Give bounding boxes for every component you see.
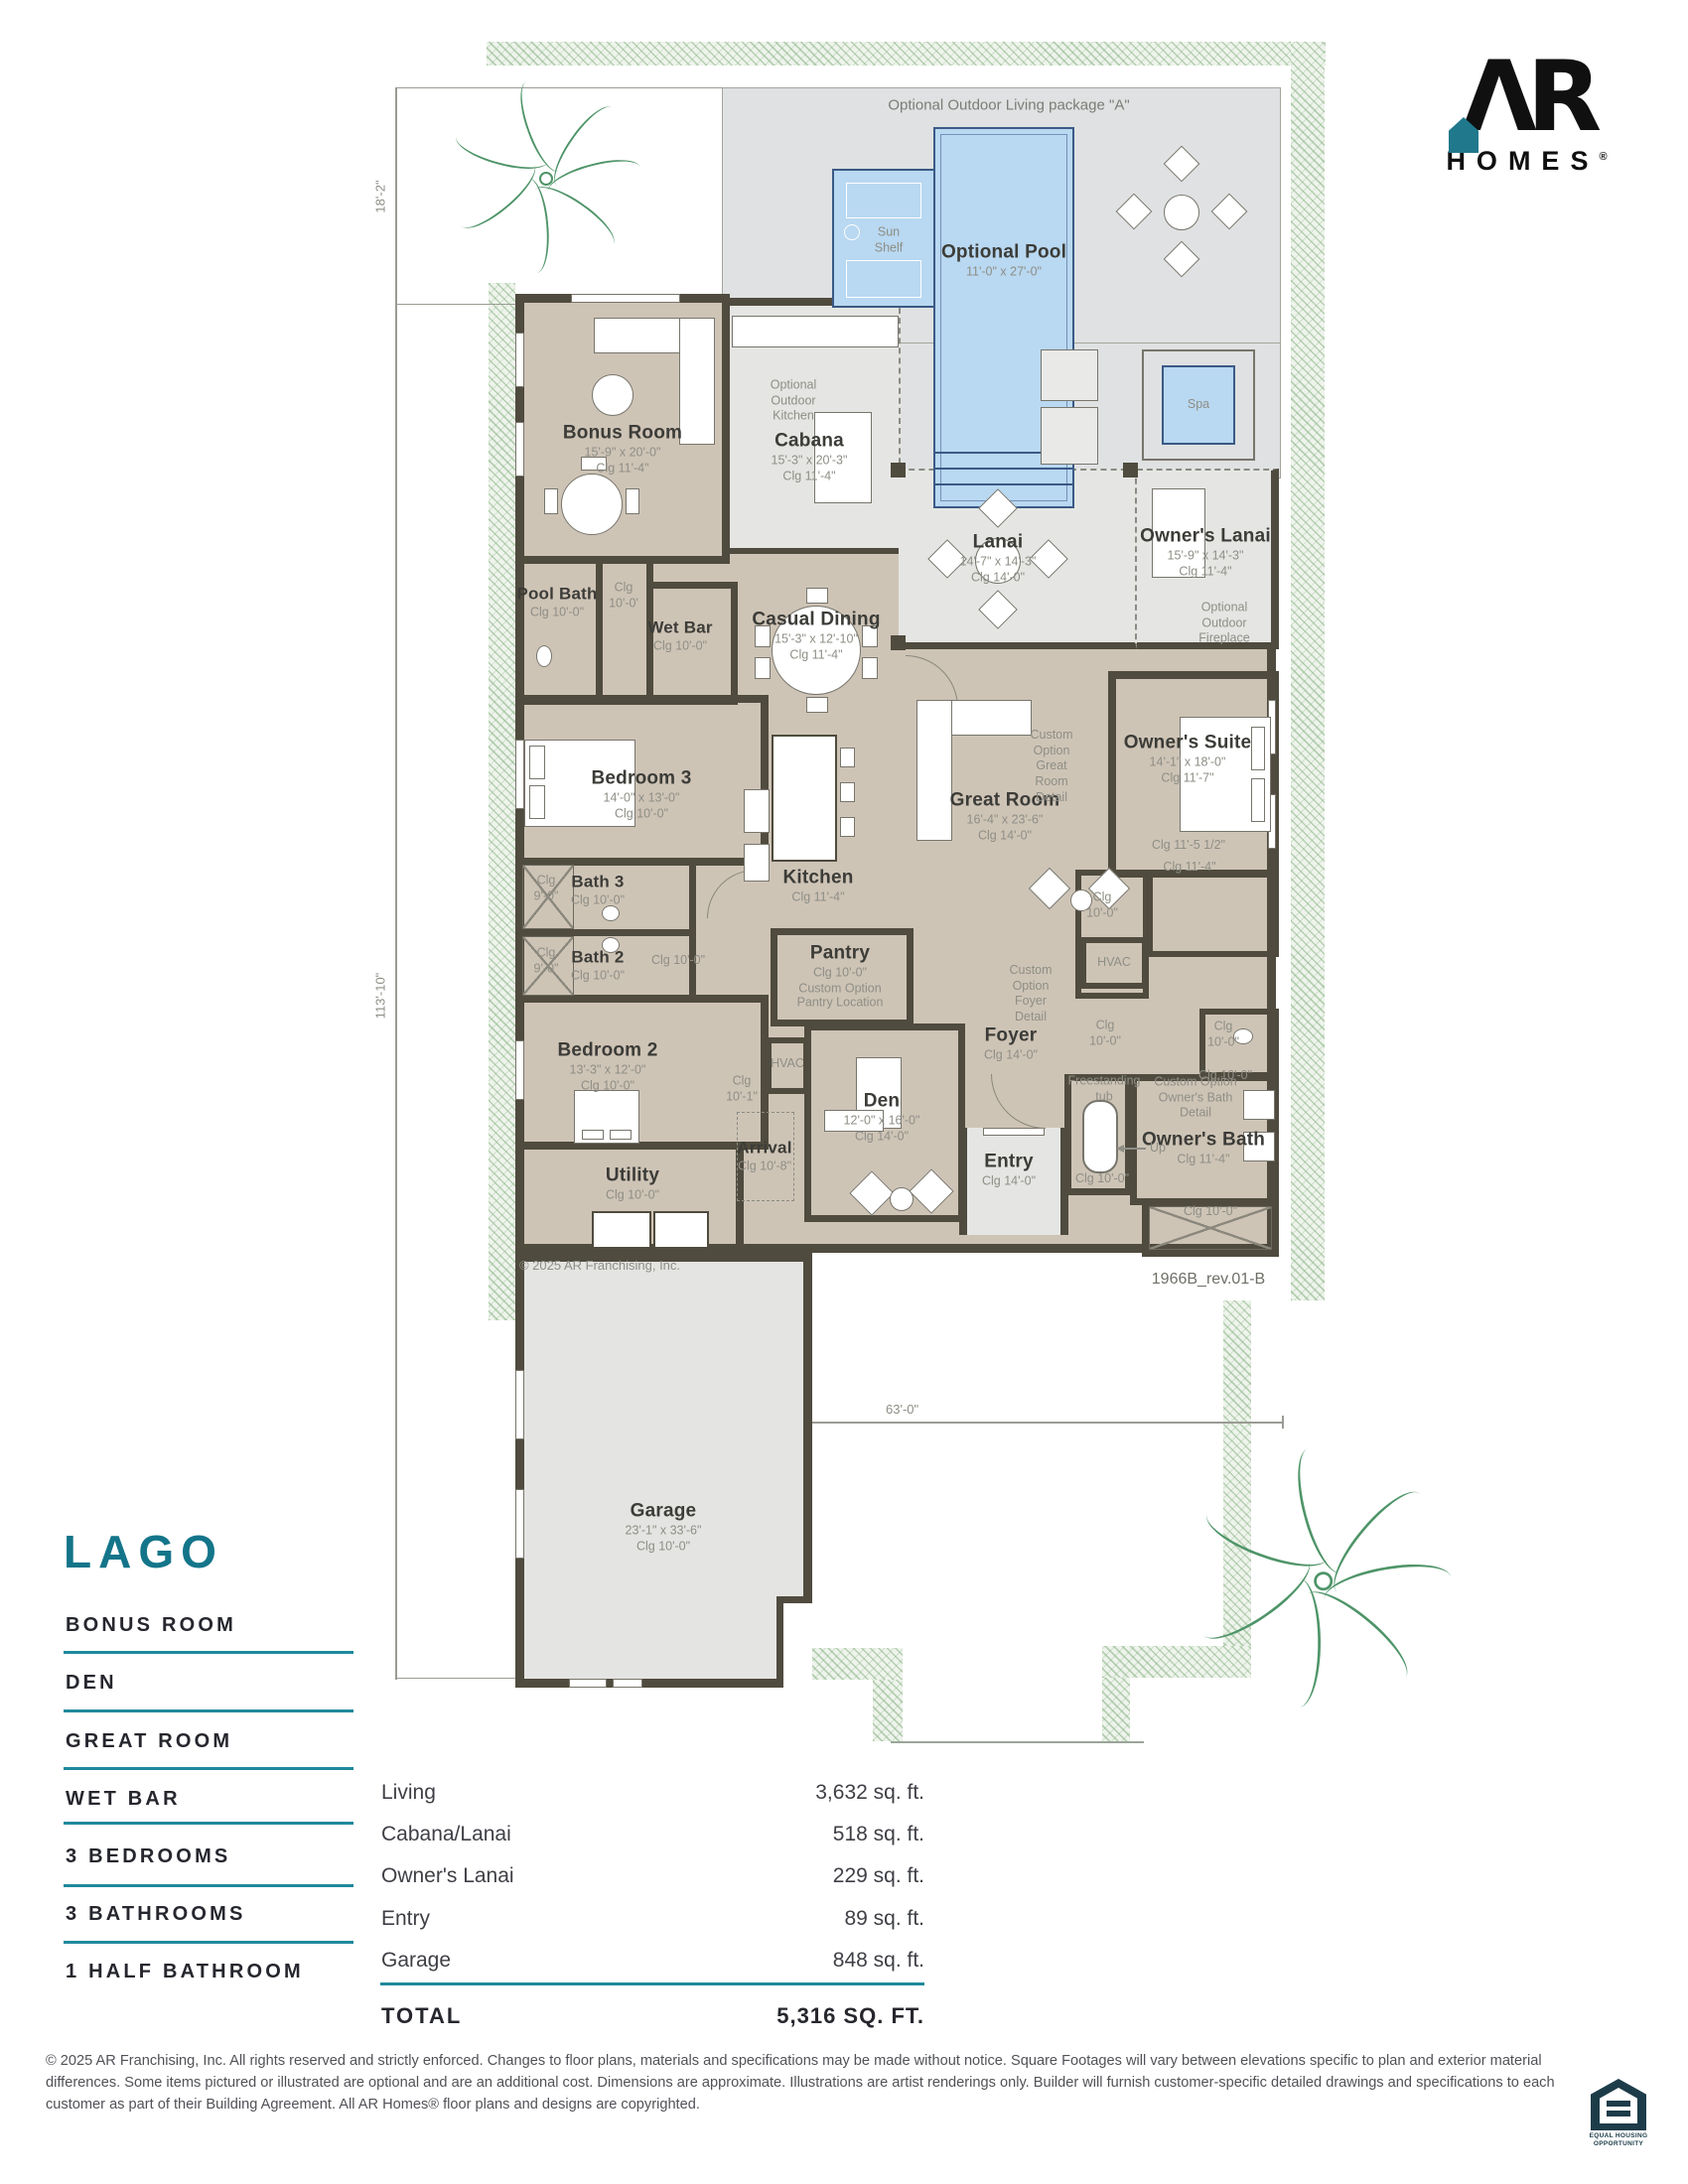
annotation-a_clg_wc: Clg 10'-0": [1207, 1019, 1239, 1049]
pool-circle-icon: [844, 224, 860, 240]
garage-notch: [776, 1596, 812, 1688]
room-ceiling: Clg 11'-4": [1140, 565, 1271, 579]
chair-icon: [544, 488, 558, 514]
toilet-icon: [536, 645, 552, 667]
stool-icon: [840, 817, 855, 837]
game-table-icon: [561, 474, 623, 535]
chair-icon: [626, 488, 639, 514]
room-label-pool: Optional Pool11'-0" x 27'-0": [941, 241, 1066, 278]
annotation-a_tub: Freestanding tub: [1068, 1073, 1141, 1104]
window: [613, 1679, 642, 1688]
lot-hatch-left: [489, 283, 515, 1320]
window: [515, 1040, 524, 1100]
room-name: Entry: [982, 1151, 1036, 1171]
area-label: Owner's Lanai: [381, 1864, 514, 1888]
annotation-a_clg_114o: Clg 11'-4": [1163, 860, 1215, 876]
annotation-a_hvac1: HVAC: [771, 1056, 804, 1072]
room-name: Bedroom 2: [557, 1039, 657, 1060]
registered-mark: ®: [1599, 151, 1607, 163]
room-label-arrival: ArrivalClg 10'-8": [737, 1138, 791, 1172]
kitchen-island: [772, 735, 837, 862]
room-name: Pantry: [797, 942, 884, 963]
spa-bench: [1041, 349, 1098, 401]
area-value: 848 sq. ft.: [676, 1949, 924, 1973]
pool-lap-line: [935, 468, 1072, 470]
annotation-a_great_detail: Custom Option Great Room Detail: [1030, 728, 1072, 805]
room-dimensions: 14'-7" x 14'-3": [960, 555, 1037, 569]
stool-icon: [840, 782, 855, 802]
feature-divider: [64, 1884, 353, 1887]
lounger-icon: [846, 183, 921, 218]
room-hall-pb: [596, 556, 653, 705]
room-ceiling: Clg 11'-7": [1124, 771, 1252, 785]
room-label-casual: Casual Dining15'-3" x 12'-10"Clg 11'-4": [752, 609, 880, 661]
total-divider: [380, 1982, 924, 1985]
total-value: 5,316 SQ. FT.: [676, 2003, 924, 2029]
chair-icon: [806, 697, 828, 713]
room-dimensions: 15'-9" x 14'-3": [1140, 549, 1271, 563]
room-label-garage: Garage23'-1" x 33'-6"Clg 10'-0": [626, 1500, 702, 1553]
lanai-column: [1123, 463, 1138, 478]
room-label-wet_bar: Wet BarClg 10'-0": [647, 617, 712, 652]
equal-housing-logo: EQUAL HOUSING OPPORTUNITY: [1583, 2079, 1654, 2149]
feature-item: GREAT ROOM: [66, 1730, 353, 1753]
window: [515, 422, 524, 477]
cabana-counter: [732, 316, 899, 347]
feature-item: 3 BATHROOMS: [66, 1903, 353, 1926]
room-ceiling: Clg 11'-4": [752, 648, 880, 662]
area-value: 89 sq. ft.: [676, 1907, 924, 1931]
room-label-pool_bath: Pool BathClg 10'-0": [516, 584, 597, 618]
disclaimer-text: © 2025 AR Franchising, Inc. All rights r…: [46, 2051, 1583, 2116]
logo-monogram: ΛR: [1415, 52, 1638, 144]
room-ceiling: Clg 10'-0": [516, 606, 597, 619]
area-value: 229 sq. ft.: [676, 1864, 924, 1888]
lanai-column: [891, 635, 906, 650]
room-ceiling: Clg 10'-0": [557, 1079, 657, 1093]
dim-bottom-label: 63'-0": [880, 1402, 924, 1417]
room-ceiling: Clg 10'-0": [797, 966, 884, 980]
room-ceiling: Clg 10'-0": [606, 1188, 659, 1202]
room-name: Den: [844, 1090, 920, 1111]
area-value: 3,632 sq. ft.: [676, 1781, 924, 1805]
room-dimensions: 15'-9" x 20'-0": [563, 446, 682, 460]
room-label-utility: UtilityClg 10'-0": [606, 1164, 659, 1201]
feature-divider: [64, 1941, 353, 1944]
stool-icon: [840, 748, 855, 767]
room-label-entry: EntryClg 14'-0": [982, 1151, 1036, 1187]
room-ceiling: Clg 14'-0": [950, 829, 1060, 843]
pillow-icon: [529, 785, 545, 819]
plan-copyright: © 2025 AR Franchising, Inc.: [519, 1258, 680, 1274]
window: [571, 294, 680, 303]
ottoman-icon: [592, 374, 633, 416]
area-value: 518 sq. ft.: [676, 1823, 924, 1846]
lot-hatch-right: [1291, 42, 1325, 1300]
dim-tick-right: [1282, 1416, 1284, 1429]
window: [569, 1679, 607, 1688]
dryer-icon: [653, 1211, 709, 1249]
walkway-hatch-5: [873, 1680, 903, 1741]
window: [515, 1489, 524, 1559]
lounger-icon: [846, 260, 921, 298]
floor-plan-page: 18'-2" 113'-10" 63'-0" Optional Outdoor …: [0, 0, 1688, 2184]
dim-ext-mid: [395, 304, 516, 305]
room-dimensions: 13'-3" x 12'-0": [557, 1063, 657, 1077]
lot-line-bottom: [891, 1741, 1144, 1743]
room-name: Utility: [606, 1164, 659, 1185]
fridge-icon: [744, 844, 770, 882]
room-ceiling: Clg 11'-4": [772, 470, 848, 483]
pillow-icon: [529, 746, 545, 779]
room-label-pantry: PantryClg 10'-0"Custom Option Pantry Loc…: [797, 942, 884, 1009]
room-dimensions: 15'-3" x 20'-3": [772, 454, 848, 468]
annotation-a_clg_foyc: Clg 10'-0": [1089, 1018, 1121, 1048]
dim-ext-bottom: [395, 1678, 516, 1679]
package-label: Optional Outdoor Living package "A": [888, 97, 1129, 116]
annotation-a_sun_shelf: Sun Shelf: [875, 224, 904, 255]
toilet-icon: [602, 905, 620, 921]
area-label: Garage: [381, 1949, 451, 1973]
room-ceiling: Clg 10'-0": [626, 1540, 702, 1554]
patio-table-icon: [1164, 195, 1199, 230]
annotation-a_clg_closL: Clg 10'-0": [1086, 889, 1118, 920]
logo-wordmark: HOMES®: [1415, 146, 1638, 177]
eho-label: EQUAL HOUSING OPPORTUNITY: [1583, 2132, 1654, 2149]
room-ceiling: Clg 10'-0": [571, 893, 625, 907]
entry-door-opening: [983, 1128, 1045, 1136]
eho-house-icon: [1591, 2079, 1646, 2130]
room-ceiling: Clg 10'-0": [571, 969, 625, 983]
window: [515, 333, 524, 387]
room-ceiling: Clg 10'-8": [737, 1160, 791, 1173]
washer-icon: [592, 1211, 651, 1249]
room-dimensions: 16'-4" x 23'-6": [950, 813, 1060, 827]
annotation-a_up: Up: [1150, 1141, 1166, 1157]
room-dimensions: 23'-1" x 33'-6": [626, 1524, 702, 1538]
room-label-bed2: Bedroom 213'-3" x 12'-0"Clg 10'-0": [557, 1039, 657, 1092]
dim-top-label: 18'-2": [373, 180, 388, 212]
pool-lap-line: [935, 483, 1072, 485]
annotation-a_clg_b2s: Clg 9'-0": [534, 945, 559, 976]
annotation-a_hvac2: HVAC: [1097, 955, 1131, 971]
chair-icon: [806, 588, 828, 604]
room-name: Bath 2: [571, 947, 625, 966]
room-name: Garage: [626, 1500, 702, 1521]
sectional-icon: [916, 700, 952, 841]
feature-item: DEN: [66, 1672, 353, 1695]
room-label-bath3: Bath 3Clg 10'-0": [571, 872, 625, 906]
feature-item: 1 HALF BATHROOM: [66, 1961, 353, 1983]
feature-divider: [64, 1651, 353, 1654]
room-closet-right: [1147, 870, 1279, 957]
room-label-bed3: Bedroom 314'-0" x 13'-0"Clg 10'-0": [591, 767, 691, 820]
room-ceiling: Clg 10'-0": [647, 639, 712, 653]
dim-left-label: 113'-10": [373, 973, 388, 1020]
room-label-owners_lanai: Owner's Lanai15'-9" x 14'-3"Clg 11'-4": [1140, 525, 1271, 578]
dim-ext-top: [395, 87, 723, 88]
room-label-foyer: FoyerClg 14'-0": [984, 1024, 1038, 1061]
room-ceiling: Clg 11'-4": [782, 890, 853, 904]
room-name: Lanai: [960, 531, 1037, 552]
area-label: Living: [381, 1781, 436, 1805]
window: [515, 1370, 524, 1439]
room-name: Casual Dining: [752, 609, 880, 629]
pillow-icon: [582, 1130, 604, 1140]
room-garage: [515, 1253, 812, 1688]
sectional-icon: [679, 318, 715, 445]
room-ceiling: Clg 10'-0": [591, 807, 691, 821]
range-icon: [744, 789, 770, 833]
room-name: Owner's Suite: [1124, 732, 1252, 752]
annotation-a_foyer_detail: Custom Option Foyer Detail: [1009, 963, 1052, 1025]
room-dimensions: 14'-0" x 13'-0": [591, 791, 691, 805]
annotation-a_clg_1155: Clg 11'-5 1/2": [1152, 838, 1225, 854]
vanity-sink-icon: [1243, 1090, 1275, 1120]
room-name: Bath 3: [571, 872, 625, 890]
room-dimensions: 15'-3" x 12'-10": [752, 632, 880, 646]
room-pool-bath: [515, 556, 603, 705]
freestanding-tub-icon: [1082, 1100, 1118, 1173]
plan-title: LAGO: [64, 1525, 223, 1578]
area-label: Cabana/Lanai: [381, 1823, 511, 1846]
room-name: Arrival: [737, 1138, 791, 1157]
annotation-a_clg_101: Clg 10'-1": [726, 1073, 758, 1104]
annotation-a_clg_wc2: Clg 10'-0": [1198, 1068, 1252, 1084]
room-label-den: Den12'-0" x 16'-0"Clg 14'-0": [844, 1090, 920, 1143]
room-label-bonus: Bonus Room15'-9" x 20'-0"Clg 11'-4": [563, 422, 682, 475]
walkway-hatch-3: [1102, 1678, 1130, 1743]
annotation-a_clg_oshower: Clg 10'-0": [1184, 1204, 1237, 1220]
room-dimensions: 11'-0" x 27'-0": [941, 265, 1066, 279]
room-ceiling: Clg 14'-0": [960, 571, 1037, 585]
total-label: TOTAL: [381, 2003, 462, 2029]
lanai-column: [891, 463, 906, 478]
plan-number: 1966B_rev.01-B: [1152, 1270, 1265, 1290]
room-name: Cabana: [772, 430, 848, 451]
up-arrow-head: [1116, 1145, 1124, 1153]
room-label-owners: Owner's Suite14'-1" x 18'-0"Clg 11'-7": [1124, 732, 1252, 784]
room-name: Optional Pool: [941, 241, 1066, 262]
room-label-bath2: Bath 2Clg 10'-0": [571, 947, 625, 982]
room-name: Foyer: [984, 1024, 1038, 1045]
annotation-a_opt_kitchen: Optional Outdoor Kitchen: [771, 378, 817, 425]
room-name: Wet Bar: [647, 617, 712, 636]
room-dimensions: 12'-0" x 16'-0": [844, 1114, 920, 1128]
room-ceiling: Clg 14'-0": [982, 1174, 1036, 1188]
pillow-icon: [1251, 778, 1265, 822]
annotation-a_clg_hall2: Clg 10'-0": [651, 953, 705, 969]
room-name: Owner's Lanai: [1140, 525, 1271, 546]
room-dimensions: 14'-1" x 18'-0": [1124, 755, 1252, 769]
spa-bench: [1041, 407, 1098, 465]
annotation-a_spa: Spa: [1188, 397, 1209, 413]
feature-divider: [64, 1822, 353, 1825]
annotation-a_opt_fireplace: Optional Outdoor Fireplace: [1198, 601, 1249, 647]
annotation-a_clg_tubroom: Clg 10'-0": [1075, 1171, 1129, 1187]
feature-item: WET BAR: [66, 1788, 353, 1811]
walkway-hatch-2: [1102, 1646, 1251, 1678]
window: [515, 740, 524, 809]
feature-item: 3 BEDROOMS: [66, 1845, 353, 1868]
area-label: Entry: [381, 1907, 430, 1931]
room-label-lanai: Lanai14'-7" x 14'-3"Clg 14'-0": [960, 531, 1037, 584]
dim-line-vertical: [395, 87, 397, 1680]
room-name: Pool Bath: [516, 584, 597, 603]
feature-divider: [64, 1709, 353, 1712]
room-note: Custom Option Pantry Location: [797, 982, 884, 1010]
pillow-icon: [1251, 727, 1265, 770]
room-name: Bedroom 3: [591, 767, 691, 788]
feature-divider: [64, 1767, 353, 1770]
ar-homes-logo: ΛR HOMES®: [1415, 52, 1638, 210]
room-name: Kitchen: [782, 867, 853, 887]
side-table-icon: [890, 1187, 914, 1211]
lot-hatch-top: [487, 42, 1326, 66]
room-ceiling: Clg 14'-0": [844, 1130, 920, 1144]
room-label-cabana: Cabana15'-3" x 20'-3"Clg 11'-4": [772, 430, 848, 482]
annotation-a_clg_hall1: Clg 10'-0': [609, 580, 638, 611]
pillow-icon: [610, 1130, 632, 1140]
annotation-a_clg_b3s: Clg 9'-0": [534, 873, 559, 903]
room-name: Bonus Room: [563, 422, 682, 443]
room-ceiling: Clg 14'-0": [984, 1048, 1038, 1062]
room-label-kitchen: KitchenClg 11'-4": [782, 867, 853, 903]
feature-item: BONUS ROOM: [66, 1614, 353, 1637]
room-ceiling: Clg 11'-4": [563, 462, 682, 476]
